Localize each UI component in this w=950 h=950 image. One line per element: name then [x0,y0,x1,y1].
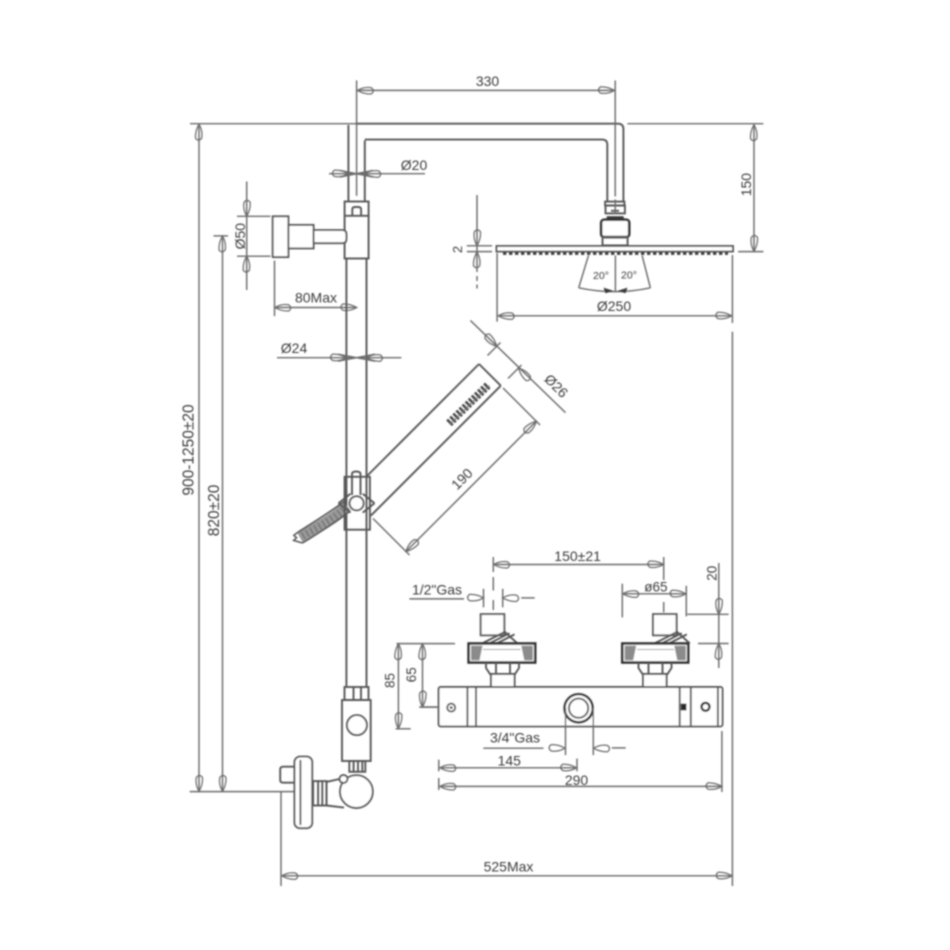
svg-text:330: 330 [476,73,500,89]
svg-text:Ø50: Ø50 [232,223,248,250]
svg-text:525Max: 525Max [484,859,534,875]
svg-text:Ø250: Ø250 [597,298,631,314]
svg-text:820±20: 820±20 [206,484,223,536]
svg-text:20: 20 [705,566,720,581]
svg-text:290: 290 [565,772,589,788]
svg-text:Ø24: Ø24 [281,340,308,356]
svg-text:3/4"Gas: 3/4"Gas [490,730,540,746]
svg-text:145: 145 [498,753,522,769]
svg-text:1/2"Gas: 1/2"Gas [412,582,462,598]
svg-text:80Max: 80Max [295,290,337,306]
svg-text:Ø20: Ø20 [401,157,428,173]
svg-text:20°: 20° [593,270,609,282]
svg-text:2: 2 [450,246,465,253]
svg-text:85: 85 [382,673,397,688]
svg-text:150: 150 [738,173,754,197]
svg-text:ø65: ø65 [644,580,667,595]
svg-text:20°: 20° [621,270,637,282]
svg-text:150±21: 150±21 [554,548,601,564]
svg-text:190: 190 [448,465,476,493]
svg-text:900-1250±20: 900-1250±20 [181,404,198,496]
svg-text:Ø26: Ø26 [541,371,571,401]
svg-text:65: 65 [404,667,419,682]
